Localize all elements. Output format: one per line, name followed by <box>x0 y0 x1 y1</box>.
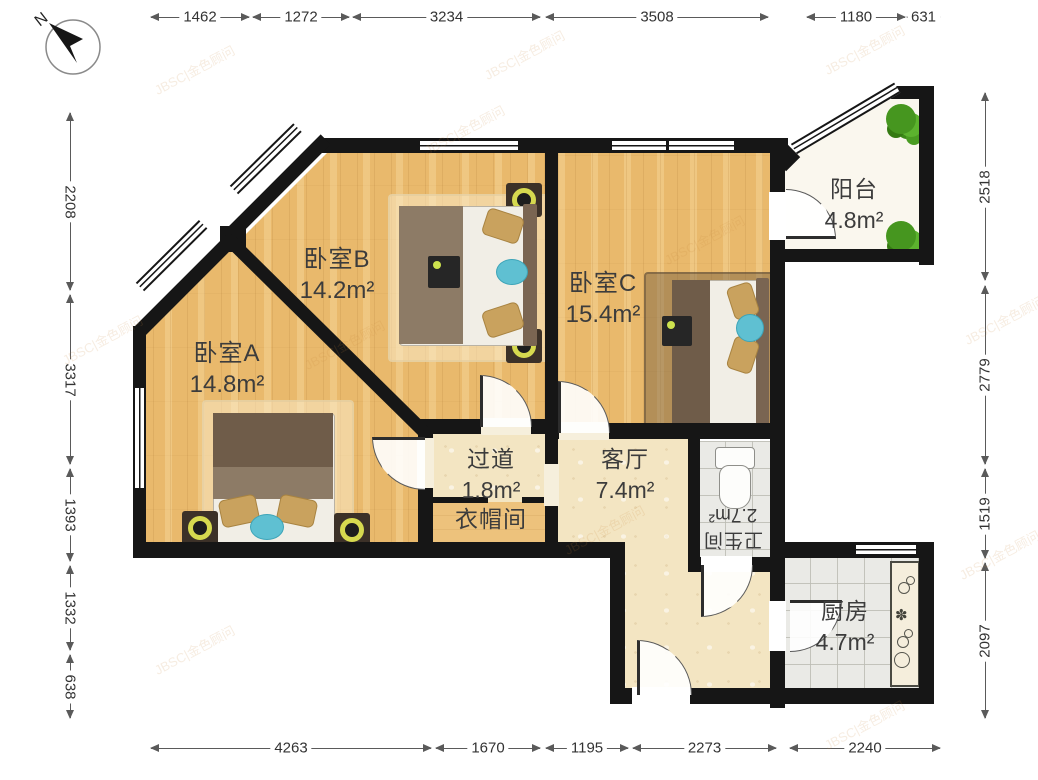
decor <box>66 456 74 465</box>
dimension-label: 3508 <box>636 9 677 26</box>
decor <box>981 710 989 719</box>
dimension-bottom: 1670 <box>435 739 541 757</box>
balcony-label: 阳台 4.8m² <box>790 174 918 236</box>
decor <box>981 272 989 281</box>
bedroom-a-label: 卧室A 14.8m² <box>162 338 292 400</box>
window <box>612 139 734 152</box>
dimension-label: 1393 <box>62 494 79 535</box>
wall <box>919 86 934 265</box>
room-name: 阳台 <box>790 174 918 205</box>
dimension-top: 1462 <box>150 8 250 26</box>
room-name: 客厅 <box>562 444 688 475</box>
decor <box>981 562 989 571</box>
blanket <box>213 413 333 467</box>
dimension-bottom: 1195 <box>545 739 629 757</box>
dimension-top: 631 <box>906 8 941 26</box>
watermark: JBSC|金色顾问 <box>481 25 568 83</box>
kitchen-label: 厨房 4.7m² <box>780 596 910 658</box>
dimension-label: 1195 <box>567 740 607 757</box>
dimension-label: 2208 <box>62 181 79 222</box>
dimension-bottom: 2240 <box>789 739 941 757</box>
hallway-label: 过道 1.8m² <box>428 444 554 506</box>
dimension-label: 1332 <box>62 587 79 628</box>
room-name: 卫生间 <box>692 527 774 552</box>
decor <box>49 23 83 63</box>
room-area: 14.8m² <box>162 369 292 400</box>
dimension-label: 631 <box>907 9 940 26</box>
bedroom-b-label: 卧室B 14.2m² <box>272 244 402 306</box>
decor <box>435 744 444 752</box>
decor <box>66 565 74 574</box>
decor <box>981 92 989 101</box>
wall <box>784 688 934 704</box>
blanket <box>672 280 710 426</box>
decor <box>352 13 361 21</box>
dimension-label: 2097 <box>977 620 994 661</box>
room-area: 4.7m² <box>780 627 910 658</box>
room-name: 卧室C <box>538 268 668 299</box>
dimension-label: 1272 <box>280 9 321 26</box>
decor <box>532 13 541 21</box>
decor <box>423 744 432 752</box>
decor <box>981 468 989 477</box>
dimension-right: 1519 <box>976 468 994 559</box>
room-area: 2.7m² <box>692 502 774 527</box>
decor <box>66 282 74 291</box>
decor <box>932 744 941 752</box>
bed-tray <box>428 256 460 288</box>
dimension-right: 2779 <box>976 285 994 465</box>
accent-pillow <box>496 259 528 285</box>
watermark: JBSC|金色顾问 <box>821 20 908 78</box>
dimension-top: 3508 <box>545 8 769 26</box>
blanket <box>213 467 333 499</box>
dimension-bottom: 2273 <box>632 739 777 757</box>
decor <box>789 744 798 752</box>
living-room-label: 客厅 7.4m² <box>562 444 688 506</box>
dimension-label: 1462 <box>179 9 220 26</box>
decor <box>545 744 554 752</box>
dimension-right: 2097 <box>976 562 994 719</box>
decor <box>66 468 74 477</box>
accent-pillow <box>250 514 284 540</box>
dimension-label: 1180 <box>836 9 876 26</box>
room-name: 过道 <box>428 444 554 475</box>
cloakroom-label: 衣帽间 <box>428 504 554 535</box>
decor <box>66 710 74 719</box>
dimension-label: 638 <box>62 670 79 703</box>
decor <box>66 642 74 651</box>
floorplan-page: { "compass": {"label": "N"}, "watermark"… <box>0 0 1038 780</box>
decor <box>981 550 989 559</box>
decor <box>632 744 641 752</box>
bedroom-c-label: 卧室C 15.4m² <box>538 268 668 330</box>
compass-north-label: N <box>32 10 51 31</box>
decor <box>66 553 74 562</box>
dimension-top: 1180 <box>806 8 906 26</box>
decor <box>760 13 769 21</box>
dimension-label: 4263 <box>270 740 311 757</box>
decor <box>768 744 777 752</box>
bathroom-label: 卫生间 2.7m² <box>692 502 774 552</box>
dimension-bottom: 4263 <box>150 739 432 757</box>
kitchen-window <box>856 543 916 556</box>
dimension-top: 3234 <box>352 8 541 26</box>
floorplan-canvas: ✽ 卧室A <box>0 0 1038 780</box>
room-area: 7.4m² <box>562 475 688 506</box>
room-area: 15.4m² <box>538 299 668 330</box>
dimension-left: 638 <box>61 654 79 719</box>
decor <box>620 744 629 752</box>
decor <box>66 654 74 663</box>
window-mullion <box>666 139 669 152</box>
room-name: 卧室A <box>162 338 292 369</box>
wall <box>919 542 934 704</box>
room-name: 厨房 <box>780 596 910 627</box>
window <box>420 139 518 152</box>
watermark: JBSC|金色顾问 <box>151 620 238 678</box>
decor <box>545 13 554 21</box>
dimension-left: 1393 <box>61 468 79 562</box>
compass-icon: N <box>32 4 106 78</box>
watermark: JBSC|金色顾问 <box>956 525 1038 583</box>
dimension-right: 2518 <box>976 92 994 281</box>
dimension-label: 3234 <box>426 9 467 26</box>
decor <box>341 13 350 21</box>
lamp-icon <box>340 518 364 542</box>
dimension-label: 3317 <box>62 359 79 400</box>
room-area: 1.8m² <box>428 475 554 506</box>
decor <box>241 13 250 21</box>
dimension-top: 1272 <box>252 8 350 26</box>
accent-pillow <box>736 314 764 342</box>
room-name: 卧室B <box>272 244 402 275</box>
dimension-left: 1332 <box>61 565 79 651</box>
decor <box>150 13 159 21</box>
decor <box>897 13 906 21</box>
room-area: 14.2m² <box>272 275 402 306</box>
door-opening <box>769 192 786 240</box>
decor <box>532 744 541 752</box>
dimension-label: 2240 <box>844 740 885 757</box>
decor <box>252 13 261 21</box>
dimension-label: 1519 <box>977 493 994 534</box>
wall <box>784 249 934 262</box>
decor <box>806 13 815 21</box>
dimension-label: 2273 <box>684 740 725 757</box>
dimension-label: 1670 <box>467 740 508 757</box>
window <box>133 388 146 488</box>
headboard <box>756 278 769 426</box>
dimension-label: 2779 <box>977 354 994 395</box>
dimension-left: 2208 <box>61 112 79 291</box>
decor <box>150 744 159 752</box>
decor <box>66 294 74 303</box>
dimension-left: 3317 <box>61 294 79 465</box>
watermark: JBSC|金色顾问 <box>151 40 238 98</box>
decor <box>981 285 989 294</box>
decor <box>981 456 989 465</box>
lamp-icon <box>188 516 212 540</box>
watermark: JBSC|金色顾问 <box>961 290 1038 348</box>
room-name: 衣帽间 <box>428 504 554 535</box>
decor <box>66 112 74 121</box>
faucet-icon <box>906 576 915 585</box>
room-area: 4.8m² <box>790 205 918 236</box>
plant-icon <box>886 104 916 134</box>
wall <box>610 542 625 702</box>
dimension-label: 2518 <box>977 166 994 207</box>
